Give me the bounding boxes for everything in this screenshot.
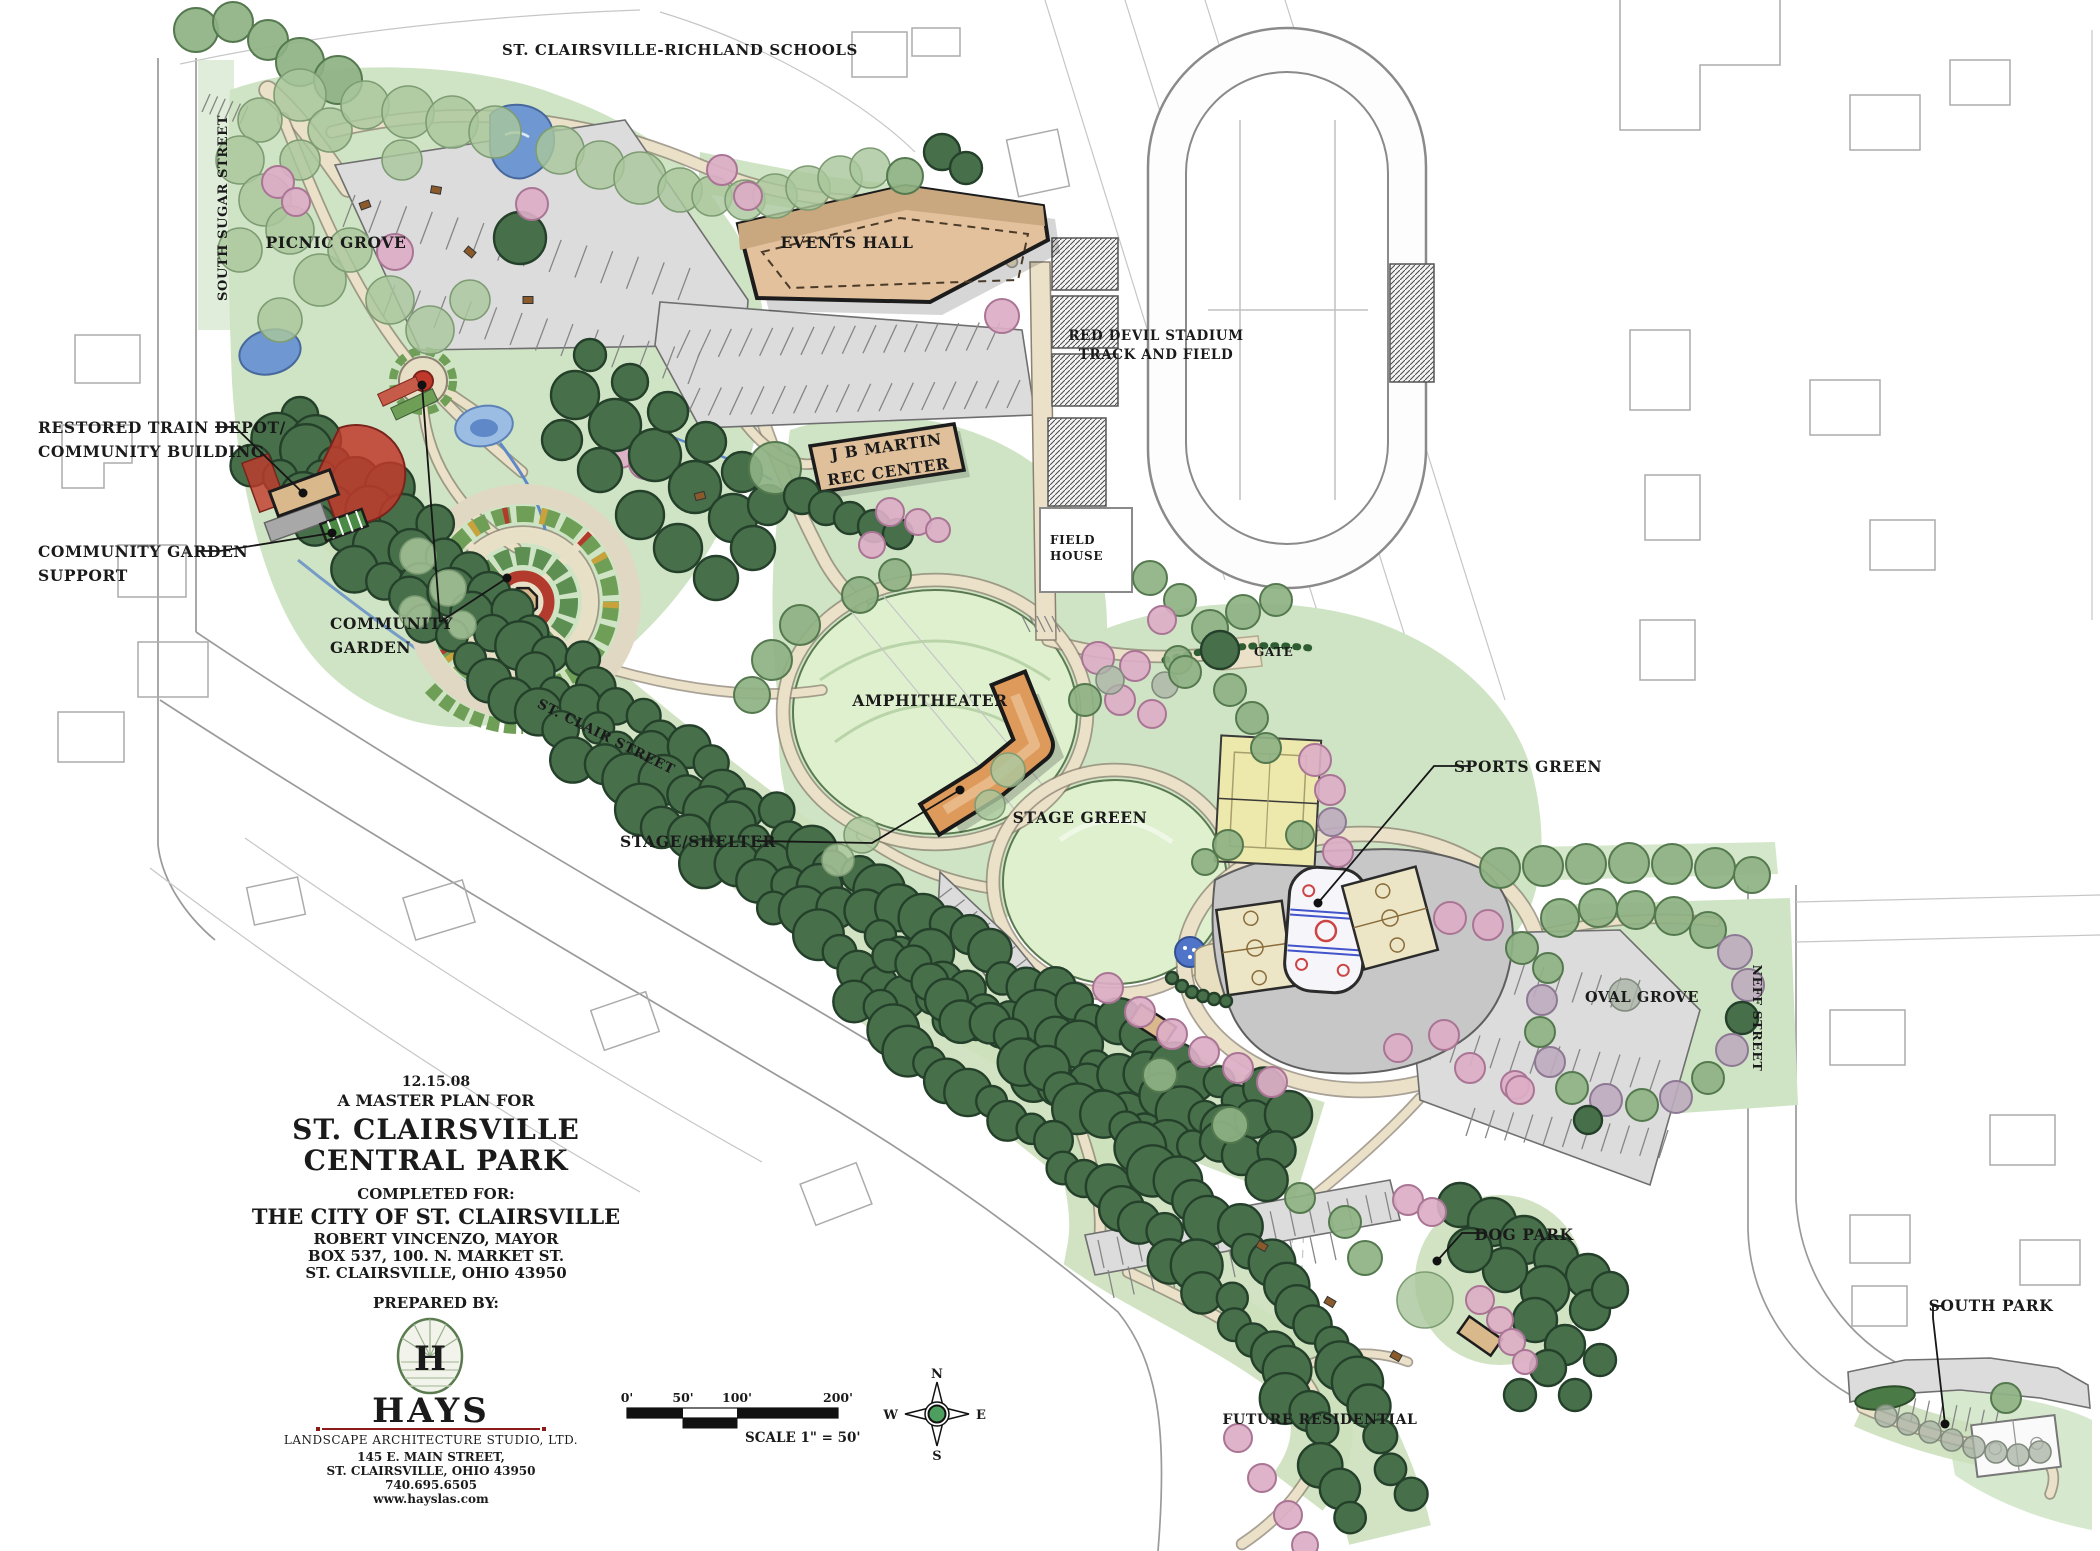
logo-address-1: 145 E. MAIN STREET, — [357, 1450, 505, 1464]
scale-tick-200: 200' — [823, 1390, 853, 1405]
logo-monogram: H — [414, 1339, 446, 1379]
callout-sports-green: SPORTS GREEN — [1454, 757, 1602, 776]
compass-center — [929, 1406, 946, 1423]
callout-community-garden-2: GARDEN — [330, 638, 411, 657]
compass-west: W — [882, 1408, 898, 1423]
label-track-and-field: TRACK AND FIELD — [1079, 347, 1234, 363]
completed-for: COMPLETED FOR: — [357, 1185, 514, 1203]
label-red-devil-stadium: RED DEVIL STADIUM — [1068, 328, 1243, 344]
label-neff-street: NEFF STREET — [1750, 965, 1765, 1072]
client-address-2: ST. CLAIRSVILLE, OHIO 43950 — [305, 1264, 566, 1282]
callout-stage-shelter: STAGE/SHELTER — [620, 832, 776, 851]
client-mayor: ROBERT VINCENZO, MAYOR — [314, 1230, 560, 1248]
scale-tick-50: 50' — [672, 1390, 693, 1405]
callout-dog-park: DOG PARK — [1474, 1225, 1573, 1244]
logo-name: HAYS — [372, 1391, 490, 1431]
client-name: THE CITY OF ST. CLAIRSVILLE — [252, 1204, 620, 1229]
callout-community-garden-1: COMMUNITY — [330, 614, 453, 633]
title-block: 12.15.08 A MASTER PLAN FOR ST. CLAIRSVIL… — [252, 1074, 620, 1312]
scale-bar: 0' 50' 100' 200' SCALE 1" = 50' — [621, 1390, 861, 1446]
label-oval-grove: OVAL GROVE — [1585, 989, 1699, 1006]
callout-restored-depot-1: RESTORED TRAIN DEPOT/ — [38, 418, 286, 437]
callout-south-park: SOUTH PARK — [1929, 1296, 2054, 1315]
label-stage-green: STAGE GREEN — [1013, 808, 1148, 827]
plan-title-1: ST. CLAIRSVILLE — [292, 1113, 580, 1146]
logo-phone: 740.695.6505 — [385, 1478, 477, 1492]
stadium-track-inner — [1186, 72, 1388, 544]
compass-rose: N E S W — [882, 1367, 986, 1464]
master-plan-map: ST. CLAIRSVILLE-RICHLAND SCHOOLS SOUTH S… — [0, 0, 2100, 1551]
label-gate: GATE — [1254, 645, 1293, 659]
plan-date: 12.15.08 — [402, 1074, 470, 1090]
label-south-sugar-street: SOUTH SUGAR STREET — [216, 115, 231, 301]
logo-studio: LANDSCAPE ARCHITECTURE STUDIO, LTD. — [284, 1433, 578, 1447]
compass-north: N — [931, 1367, 943, 1382]
label-picnic-grove: PICNIC GROVE — [266, 233, 407, 252]
scale-tick-0: 0' — [621, 1390, 634, 1405]
callout-garden-support-1: COMMUNITY GARDEN — [38, 542, 248, 561]
callout-garden-support-2: SUPPORT — [38, 566, 128, 585]
compass-east: E — [976, 1408, 986, 1423]
scale-tick-100: 100' — [722, 1390, 752, 1405]
logo-website: www.hayslas.com — [372, 1492, 489, 1506]
label-field-house-1: FIELD — [1050, 533, 1095, 547]
label-field-house-2: HOUSE — [1050, 549, 1103, 563]
basketball-court-left — [1216, 901, 1293, 995]
client-address-1: BOX 537, 100. N. MARKET ST. — [308, 1247, 564, 1265]
scale-caption: SCALE 1" = 50' — [745, 1430, 861, 1446]
prepared-by: PREPARED BY: — [373, 1294, 499, 1312]
label-schools: ST. CLAIRSVILLE-RICHLAND SCHOOLS — [502, 41, 858, 59]
compass-south: S — [932, 1449, 941, 1464]
plan-subtitle: A MASTER PLAN FOR — [336, 1091, 535, 1110]
label-amphitheater: AMPHITHEATER — [851, 691, 1007, 710]
logo-address-2: ST. CLAIRSVILLE, OHIO 43950 — [326, 1464, 535, 1478]
master-plan-sheet: ST. CLAIRSVILLE-RICHLAND SCHOOLS SOUTH S… — [0, 0, 2100, 1551]
label-future-residential: FUTURE RESIDENTIAL — [1222, 1412, 1417, 1428]
callout-restored-depot-2: COMMUNITY BUILDING — [38, 442, 265, 461]
hays-logo: H HAYS LANDSCAPE ARCHITECTURE STUDIO, LT… — [284, 1319, 578, 1506]
plan-title-2: CENTRAL PARK — [304, 1144, 569, 1177]
label-events-hall: EVENTS HALL — [780, 233, 913, 252]
